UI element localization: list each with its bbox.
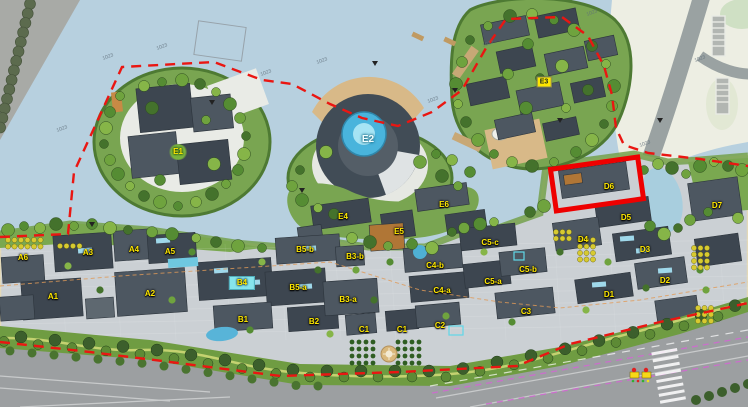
tree: [571, 147, 582, 158]
tree: [691, 245, 696, 250]
tree: [357, 340, 362, 345]
site-plan-art: [0, 0, 748, 407]
tree: [410, 354, 415, 359]
tree: [370, 296, 377, 303]
tree: [6, 75, 17, 86]
tree: [586, 134, 599, 147]
tree: [432, 150, 441, 159]
tree: [704, 245, 709, 250]
tree: [176, 74, 189, 87]
tree: [117, 340, 129, 352]
tree: [396, 340, 401, 345]
tree: [590, 250, 595, 255]
tree: [604, 258, 611, 265]
tree: [246, 326, 253, 333]
tree: [364, 340, 369, 345]
tree: [472, 134, 485, 147]
tree: [590, 257, 595, 262]
tree: [371, 354, 376, 359]
tree: [112, 168, 125, 181]
tree: [320, 146, 333, 159]
tree: [314, 382, 323, 391]
tree: [224, 98, 237, 111]
tree: [403, 354, 408, 359]
tree: [12, 244, 17, 249]
tree: [116, 92, 125, 101]
building: [1, 255, 45, 284]
tree: [146, 102, 159, 115]
tree: [147, 227, 158, 238]
tree: [83, 337, 95, 349]
tree: [100, 122, 113, 135]
tree: [611, 337, 621, 347]
tree: [96, 286, 103, 293]
tree: [550, 158, 559, 167]
tree: [357, 347, 362, 352]
tree: [139, 81, 150, 92]
tree: [64, 243, 69, 248]
tree: [507, 157, 518, 168]
tree: [723, 161, 734, 172]
tree: [151, 344, 163, 356]
tree: [202, 116, 211, 125]
tree: [192, 234, 201, 243]
tree: [410, 340, 415, 345]
tree: [627, 326, 639, 338]
tree: [407, 239, 418, 250]
building: [265, 268, 327, 306]
tree: [64, 262, 71, 269]
tree: [645, 221, 656, 232]
tree: [364, 354, 369, 359]
tree: [642, 284, 649, 291]
tree: [38, 237, 43, 242]
tree: [25, 244, 30, 249]
tree: [158, 78, 167, 87]
tree: [350, 340, 355, 345]
tree: [248, 374, 257, 383]
tree: [287, 181, 298, 192]
tree: [704, 265, 709, 270]
tree: [602, 60, 611, 69]
tree: [2, 94, 13, 105]
tree: [126, 182, 135, 191]
tree: [182, 365, 191, 374]
tree: [18, 244, 23, 249]
tree: [20, 18, 31, 29]
tree: [188, 248, 195, 255]
tree: [292, 381, 301, 390]
skylight: [636, 248, 650, 254]
tree: [577, 244, 582, 249]
building: [176, 139, 232, 184]
tree: [459, 223, 470, 234]
tree: [560, 236, 565, 241]
tree: [70, 243, 75, 248]
tree: [525, 207, 536, 218]
skylight: [592, 282, 606, 288]
tree: [33, 340, 43, 350]
tree: [407, 372, 417, 382]
tree: [457, 57, 468, 68]
tree: [474, 218, 487, 231]
tree: [11, 56, 22, 67]
tree: [18, 237, 23, 242]
tree: [417, 354, 422, 359]
tree: [436, 170, 449, 183]
tree: [94, 355, 103, 364]
tree: [105, 107, 116, 118]
tree: [417, 340, 422, 345]
building: [0, 295, 35, 321]
tree: [355, 365, 367, 377]
tree: [396, 361, 401, 366]
tree: [253, 359, 265, 371]
tree: [70, 222, 79, 231]
tree: [50, 351, 59, 360]
tree: [465, 167, 476, 178]
tree: [155, 175, 166, 186]
tree: [556, 60, 569, 73]
tree: [504, 10, 517, 23]
tree: [238, 148, 251, 161]
tree: [371, 347, 376, 352]
tree: [584, 237, 589, 242]
tree: [417, 361, 422, 366]
tree: [704, 391, 714, 401]
building: [335, 245, 364, 267]
tree: [174, 202, 183, 211]
fountain-icon: [381, 346, 397, 362]
tree: [15, 331, 27, 343]
tree: [138, 359, 147, 368]
tree: [691, 395, 701, 405]
tree: [222, 180, 231, 189]
tree: [326, 330, 333, 337]
tree: [682, 170, 691, 179]
building: [385, 309, 419, 332]
tree: [287, 364, 299, 376]
tree: [490, 150, 499, 159]
tree: [410, 347, 415, 352]
skylight: [214, 268, 228, 274]
tree: [556, 248, 563, 255]
tree: [191, 197, 202, 208]
tree: [235, 113, 246, 124]
tree: [509, 360, 519, 370]
tree: [371, 340, 376, 345]
tree: [538, 200, 551, 213]
tree: [166, 228, 179, 241]
tree: [305, 372, 315, 382]
tree: [232, 240, 245, 253]
tree: [685, 215, 696, 226]
tree: [12, 237, 17, 242]
tree: [577, 250, 582, 255]
tree: [13, 46, 24, 57]
tree: [8, 65, 19, 76]
tree: [211, 237, 222, 248]
tree: [226, 371, 235, 380]
tree: [22, 8, 33, 19]
tree: [195, 79, 206, 90]
tree: [233, 165, 244, 176]
tree: [593, 335, 605, 347]
tree: [566, 236, 571, 241]
building: [345, 313, 377, 336]
tree: [600, 120, 609, 129]
tree: [160, 362, 169, 371]
tree: [454, 100, 463, 109]
tree: [5, 244, 10, 249]
tree: [18, 27, 29, 38]
tree: [296, 166, 305, 175]
tree: [695, 305, 700, 310]
tree: [447, 155, 458, 166]
tree: [57, 243, 62, 248]
tree: [258, 258, 265, 265]
tree: [674, 224, 683, 233]
tree: [35, 223, 46, 234]
tree: [702, 305, 707, 310]
tree: [426, 242, 439, 255]
tree: [347, 233, 358, 244]
building: [115, 268, 188, 317]
tree: [357, 354, 362, 359]
tree: [461, 117, 472, 128]
tree: [698, 258, 703, 263]
tree: [219, 354, 231, 366]
tree: [577, 346, 587, 356]
tree: [442, 312, 449, 319]
tree: [314, 266, 321, 273]
tree: [466, 36, 475, 45]
tree: [520, 102, 533, 115]
tree: [371, 361, 376, 366]
tree: [31, 237, 36, 242]
tree: [702, 318, 707, 323]
tree: [20, 222, 29, 231]
tree: [698, 245, 703, 250]
tree: [704, 252, 709, 257]
tree: [185, 349, 197, 361]
tree: [417, 347, 422, 352]
tree: [38, 244, 43, 249]
building: [85, 297, 114, 319]
tree: [206, 188, 219, 201]
tree: [702, 286, 709, 293]
tree: [584, 250, 589, 255]
tree: [403, 340, 408, 345]
tree: [658, 228, 671, 241]
tree: [364, 361, 369, 366]
tree: [698, 252, 703, 257]
tree: [49, 334, 61, 346]
tree: [4, 84, 15, 95]
tree: [357, 361, 362, 366]
tree: [691, 258, 696, 263]
skylight: [246, 280, 260, 286]
tree: [329, 209, 340, 220]
tree: [72, 353, 81, 362]
tree: [523, 39, 534, 50]
tree: [730, 383, 740, 393]
tree: [645, 329, 655, 339]
tree: [403, 361, 408, 366]
tree: [384, 242, 393, 251]
tree: [414, 156, 427, 169]
tree: [364, 236, 377, 249]
tree: [694, 160, 707, 173]
skylight: [298, 284, 312, 290]
tree: [77, 243, 82, 248]
tree: [666, 162, 679, 175]
tree: [116, 357, 125, 366]
tree: [577, 237, 582, 242]
tree: [2, 224, 15, 237]
tree: [566, 229, 571, 234]
skylight: [620, 236, 634, 242]
tree: [484, 22, 493, 31]
tree: [503, 69, 514, 80]
tree: [490, 218, 499, 227]
tree: [480, 248, 487, 255]
building: [323, 278, 379, 316]
tree: [364, 347, 369, 352]
tree: [5, 237, 10, 242]
tree: [704, 208, 713, 217]
tree: [536, 74, 545, 83]
tree: [583, 85, 594, 96]
tree: [139, 191, 150, 202]
tree: [691, 252, 696, 257]
tree: [584, 257, 589, 262]
tree: [15, 37, 26, 48]
tree: [590, 244, 595, 249]
tree: [208, 158, 221, 171]
skylight: [302, 246, 316, 252]
tree: [386, 258, 393, 265]
tree: [713, 311, 723, 321]
tree: [314, 204, 323, 213]
tree: [441, 372, 451, 382]
tree: [695, 318, 700, 323]
tree: [105, 155, 116, 166]
tree: [124, 226, 133, 235]
site-plan: E1E2E3E4E5E6A6A3A4A5A1A2B4B5-bB5-aB3-bB3…: [0, 0, 748, 407]
tree: [104, 222, 117, 235]
building: [563, 173, 582, 185]
tree: [582, 306, 589, 313]
tree: [410, 361, 415, 366]
tree: [508, 318, 515, 325]
skylight: [658, 268, 672, 274]
building: [415, 302, 461, 328]
tree: [25, 237, 30, 242]
tree: [31, 244, 36, 249]
tree: [168, 296, 175, 303]
tree: [590, 237, 595, 242]
tree: [454, 182, 463, 191]
tree: [270, 378, 279, 387]
tree: [708, 318, 713, 323]
tree: [296, 194, 309, 207]
building: [409, 272, 469, 303]
tree: [717, 387, 727, 397]
tree: [350, 361, 355, 366]
tree: [350, 354, 355, 359]
tree: [526, 160, 539, 173]
tree: [560, 229, 565, 234]
tree: [258, 244, 267, 253]
tree: [553, 236, 558, 241]
tree: [28, 348, 37, 357]
tree: [679, 321, 689, 331]
tree: [352, 266, 359, 273]
tree: [733, 213, 744, 224]
tree: [403, 347, 408, 352]
tree: [50, 218, 63, 231]
tree: [212, 88, 221, 97]
building: [128, 132, 180, 179]
tree: [350, 347, 355, 352]
tree: [242, 132, 251, 141]
tree: [698, 265, 703, 270]
tree: [584, 244, 589, 249]
tree: [6, 346, 15, 355]
tree: [154, 196, 167, 209]
tree: [553, 229, 558, 234]
tree: [204, 368, 213, 377]
tree: [577, 257, 582, 262]
tree: [653, 159, 664, 170]
tree: [448, 228, 457, 237]
tree: [100, 140, 109, 149]
tree: [562, 104, 571, 113]
tree: [704, 258, 709, 263]
tree: [691, 265, 696, 270]
